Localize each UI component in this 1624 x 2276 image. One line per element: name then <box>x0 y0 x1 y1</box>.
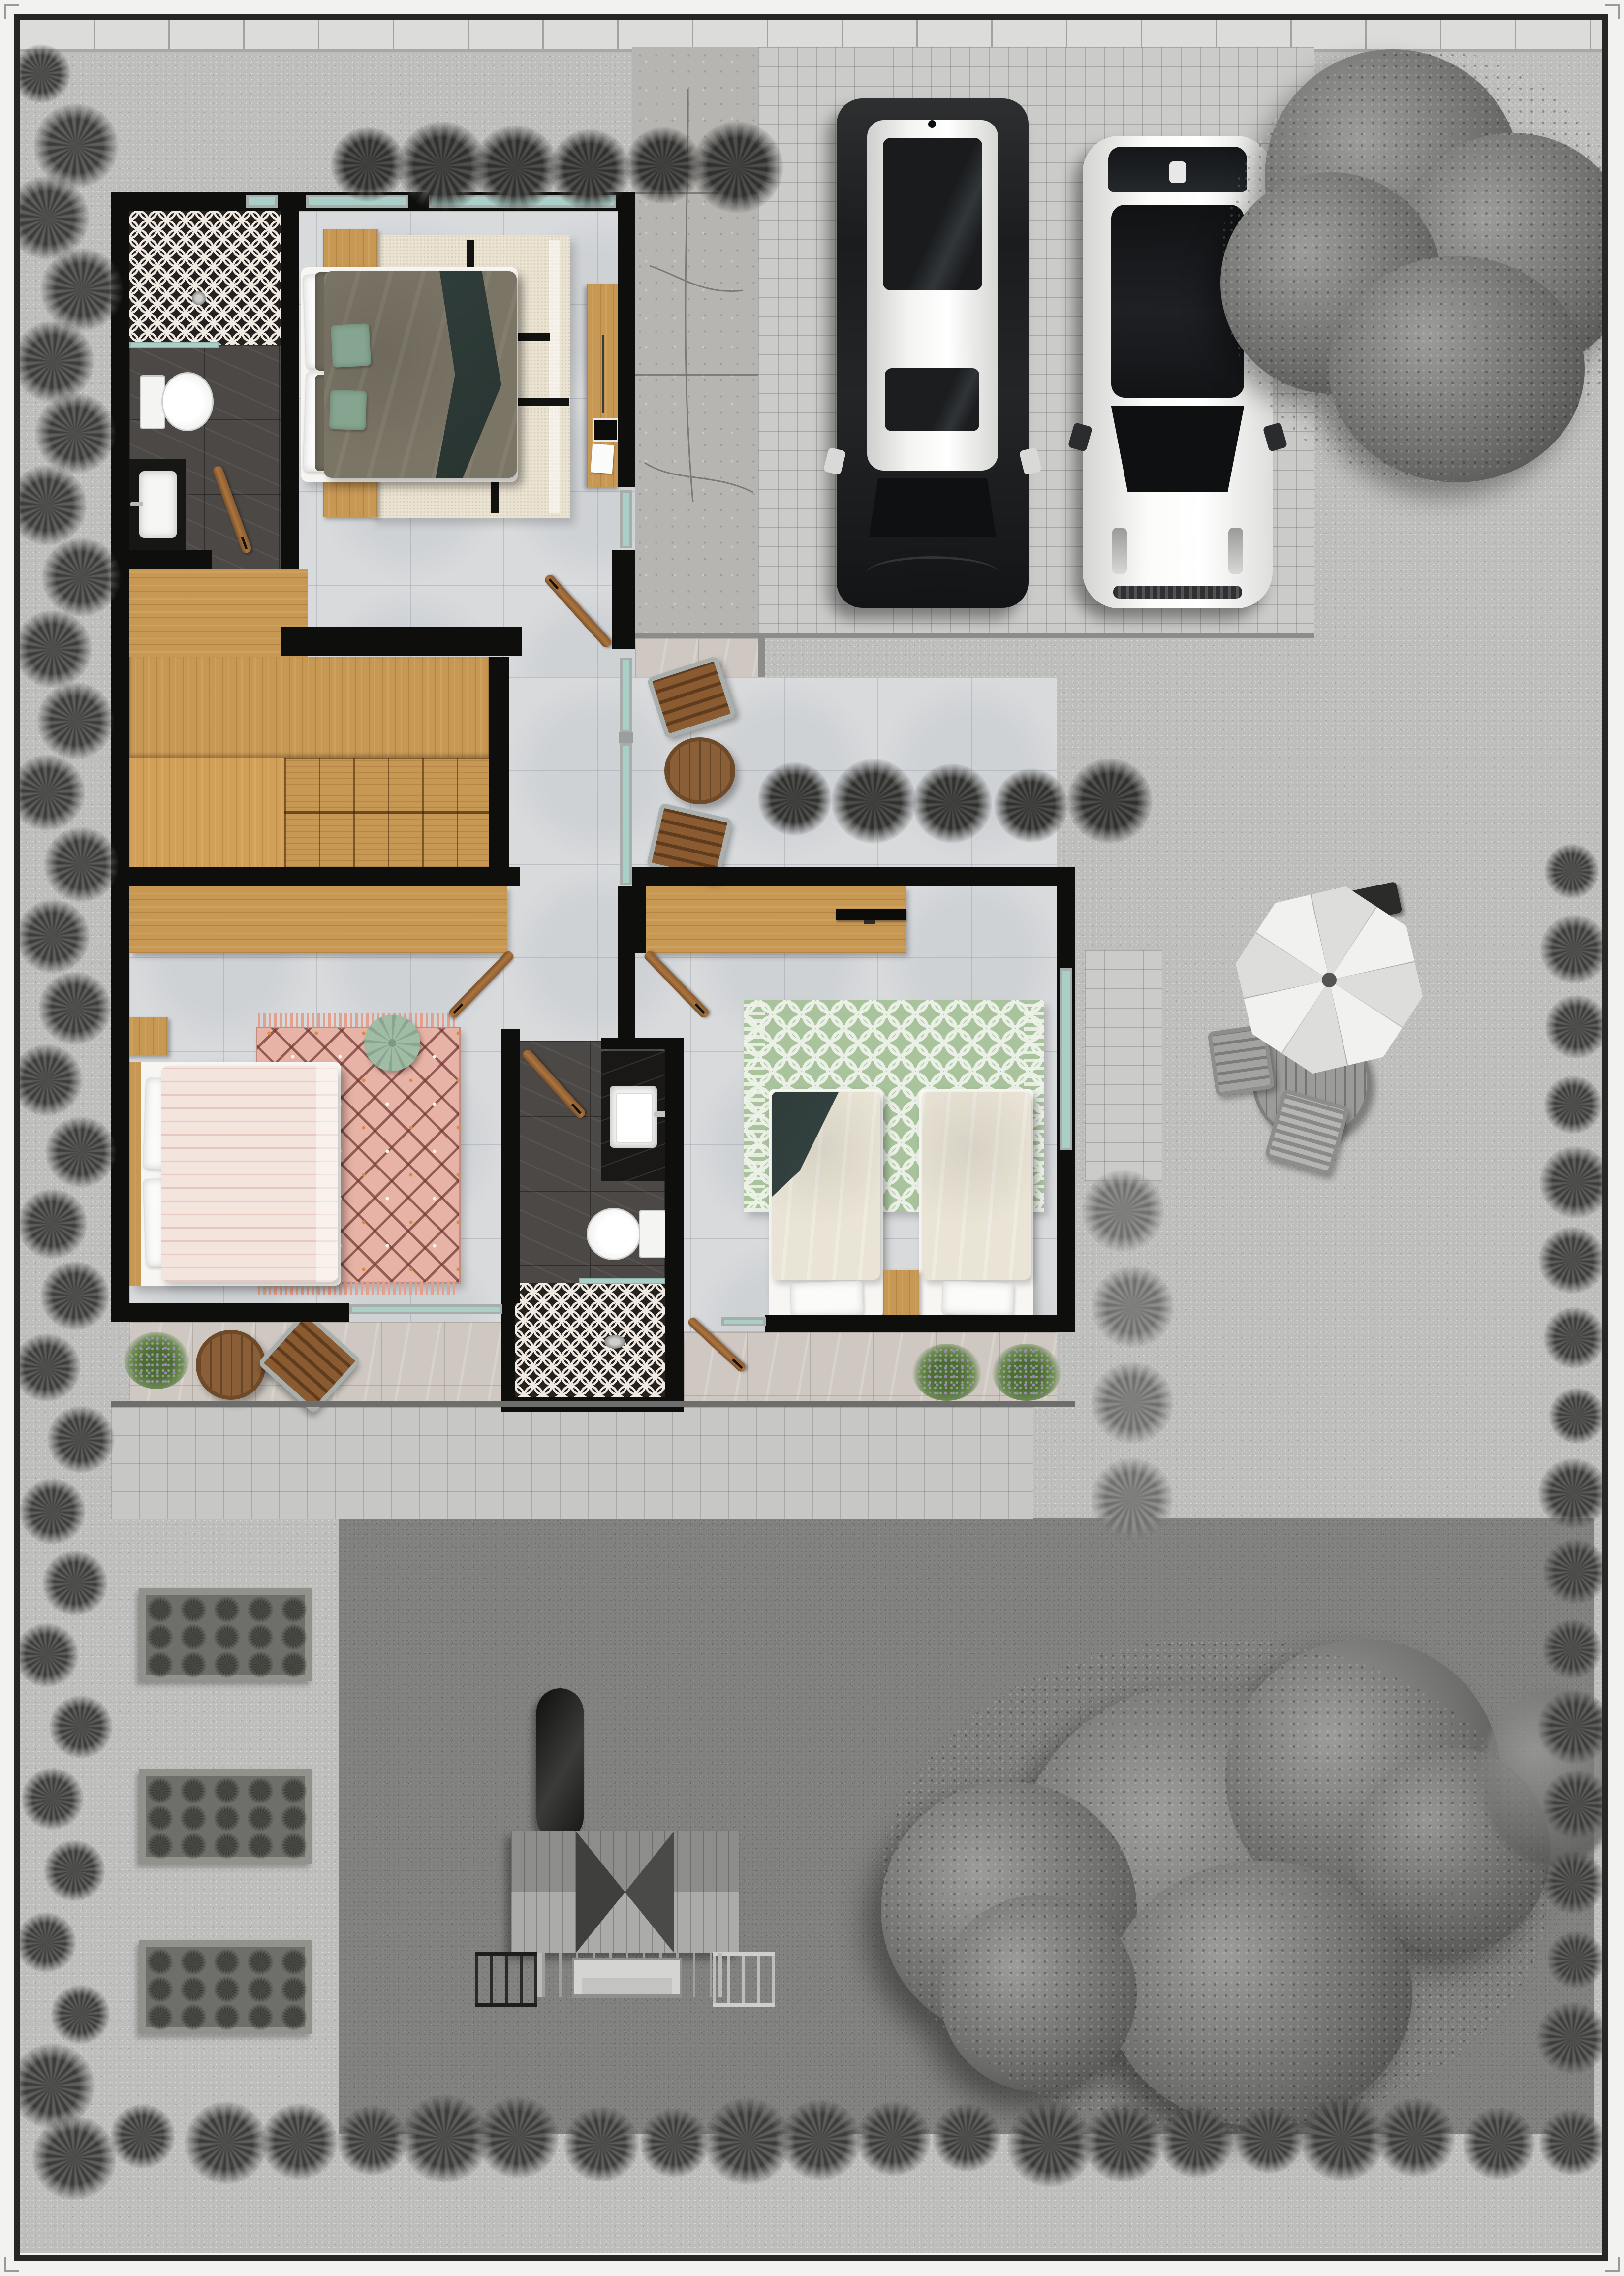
toilet-bowl <box>161 372 214 431</box>
wall-stairs-bottom <box>111 867 520 886</box>
hedge-shrub <box>912 763 992 843</box>
window <box>620 743 632 885</box>
bed-plant <box>180 1949 207 1975</box>
grass-tuft <box>640 2108 709 2178</box>
grass-tuft <box>16 1912 76 1973</box>
grass-tuft <box>37 682 114 759</box>
bed-plant <box>247 1777 274 1804</box>
grass-tuft <box>1007 2101 1093 2187</box>
grass-tuft <box>261 2103 338 2180</box>
tree-canopy-texture <box>1220 49 1624 482</box>
grass-tuft <box>1538 1458 1609 1529</box>
grass-tuft <box>40 248 124 331</box>
wardrobe-pink-room <box>129 886 507 953</box>
grass-tuft <box>42 537 121 617</box>
bed-plant <box>247 1651 274 1678</box>
grass-tuft <box>12 1333 81 1402</box>
pouf-button <box>388 1039 396 1047</box>
desk-console <box>587 284 620 487</box>
hedge-shrub <box>549 129 630 210</box>
bed-plant <box>147 1651 173 1678</box>
grass-tuft <box>1547 1931 1605 1989</box>
wall-shared-bath-right <box>665 1038 684 1400</box>
desk-tablet <box>593 418 619 442</box>
lavender-foliage <box>912 1344 981 1401</box>
shower-drain <box>192 291 206 305</box>
playhouse <box>468 1683 792 2008</box>
frame-border-left <box>14 14 20 2261</box>
pouf <box>364 1015 420 1071</box>
terrace-table <box>664 737 735 804</box>
rug-light-band <box>549 240 560 513</box>
grass-tuft <box>35 393 116 474</box>
grass-tuft <box>47 1406 115 1473</box>
tv-stand <box>864 920 875 924</box>
bed-plant <box>147 1833 173 1859</box>
rug-pink-fringe <box>258 1013 456 1027</box>
bed-plant <box>147 1805 173 1832</box>
bed-plant <box>147 1976 173 2003</box>
grass-tuft <box>1539 1146 1612 1219</box>
window <box>349 1304 502 1314</box>
page-margin-right <box>1607 0 1624 2276</box>
bed-plant <box>147 1777 173 1804</box>
window <box>1060 968 1072 1150</box>
grass-tuft <box>477 2096 559 2179</box>
bed-plant <box>281 2004 307 2030</box>
grass-tuft <box>1542 1619 1602 1679</box>
duvet-blush <box>161 1066 338 1282</box>
grass-tuft <box>16 899 90 974</box>
bed-plant <box>180 1777 207 1804</box>
grass-tuft <box>1539 2109 1605 2176</box>
toilet-shared <box>587 1207 665 1258</box>
bed-plant <box>214 1651 240 1678</box>
van-sunroof <box>883 138 982 290</box>
wall-bath-bottom <box>129 550 212 569</box>
van-rear-window <box>885 368 979 431</box>
bed-plant <box>281 1596 307 1623</box>
master-shower-floor <box>129 211 281 345</box>
van-windshield <box>869 478 996 537</box>
wall-master-right <box>618 211 635 487</box>
bed-plant <box>247 1805 274 1832</box>
bed-plant <box>180 1596 207 1623</box>
throw-teal <box>772 1092 880 1280</box>
lavender-foliage <box>992 1344 1061 1401</box>
grass-tuft <box>14 610 92 688</box>
bed-plant <box>247 1833 274 1859</box>
bed-plant <box>214 1833 240 1859</box>
grass-tuft <box>1543 1539 1608 1604</box>
stair-treads <box>284 758 490 867</box>
bed-plant <box>214 2004 240 2030</box>
throw-teal <box>324 271 517 478</box>
hedge-shrub <box>691 121 783 213</box>
desk-pen <box>602 335 604 413</box>
toilet-bowl <box>587 1208 641 1260</box>
grass-tuft <box>1236 2106 1303 2174</box>
shower-glass <box>129 342 219 348</box>
parking-tree <box>1201 49 1624 492</box>
grass-tuft <box>49 1695 113 1759</box>
grass-tuft <box>44 1840 105 1901</box>
crop-mark <box>4 4 19 19</box>
suv-grille <box>1113 586 1242 599</box>
bed-plant <box>281 1624 307 1650</box>
bed-plant <box>214 1949 240 1975</box>
grass-tuft <box>1544 1075 1602 1134</box>
bed-plant <box>147 1624 173 1650</box>
hedge-shrub <box>625 127 702 204</box>
grass-tuft <box>14 1623 79 1687</box>
washbasin-master <box>129 459 186 550</box>
wall-master-bottom <box>281 627 522 656</box>
grass-tuft <box>19 1478 86 1545</box>
grass-tuft <box>12 44 71 103</box>
grass-tuft <box>12 320 94 403</box>
grass-tuft <box>1463 2107 1535 2180</box>
grass-tuft <box>1083 2102 1163 2182</box>
lavender-pot <box>992 1344 1061 1401</box>
stair-mid-line <box>284 811 490 814</box>
floor-plan-scene <box>0 0 1624 2276</box>
grass-tuft <box>21 1768 84 1830</box>
bed-plant <box>214 1805 240 1832</box>
grass-tuft <box>337 2105 407 2176</box>
bed-plant <box>180 1624 207 1650</box>
lavender-pot <box>124 1332 189 1389</box>
frame-border-top <box>15 14 1608 20</box>
grass-tuft <box>45 1116 117 1188</box>
frame-border-right <box>1602 14 1608 2261</box>
duvet-fold <box>316 1066 338 1282</box>
rug-dash <box>513 333 550 341</box>
gray-bush <box>1091 1361 1174 1444</box>
balcony-table <box>196 1330 266 1400</box>
grass-tuft <box>933 2103 1001 2172</box>
basin <box>139 471 177 538</box>
stair-landing-left <box>129 758 284 867</box>
hedge-shrub <box>1067 758 1153 844</box>
shared-shower-glass <box>579 1278 665 1284</box>
stair-landing-upper <box>129 657 490 758</box>
double-bed <box>301 267 518 482</box>
tv <box>836 909 906 920</box>
bed-plant <box>247 1596 274 1623</box>
grass-tuft <box>1537 1690 1612 1764</box>
bed-plant <box>247 1949 274 1975</box>
grass-tuft <box>1545 995 1609 1059</box>
bed-plant <box>281 1976 307 2003</box>
grass-tuft <box>185 2101 268 2184</box>
window <box>620 490 632 548</box>
bed-pink <box>129 1062 341 1286</box>
duvet-olive <box>324 271 517 478</box>
van-antenna <box>928 120 936 128</box>
bed-plant <box>180 1976 207 2003</box>
playhouse-rail-left <box>475 1952 537 2007</box>
bed-plant <box>180 1651 207 1678</box>
nightstand <box>883 1270 919 1315</box>
bed-plant <box>180 2004 207 2030</box>
shared-drain <box>604 1335 625 1349</box>
grass-tuft <box>856 2101 931 2176</box>
faucet <box>130 502 143 506</box>
pillow <box>790 1280 864 1317</box>
gray-bush <box>1082 1170 1164 1252</box>
lavender-foliage <box>124 1332 189 1389</box>
bed-plant <box>247 1976 274 2003</box>
grass-tuft <box>44 827 119 902</box>
twin-bed-right <box>919 1089 1033 1318</box>
duvet-cream <box>922 1092 1031 1280</box>
bed-plant <box>214 1976 240 2003</box>
shared-shower-floor <box>515 1283 665 1397</box>
wall-kids-top <box>632 867 1075 886</box>
toilet-master <box>140 372 212 429</box>
wall-pink-bottom <box>111 1303 349 1322</box>
bed-plant <box>281 1949 307 1975</box>
dark-minivan <box>837 98 1029 608</box>
wall-shared-bath-left <box>501 1041 515 1412</box>
grass-tuft <box>32 2116 117 2200</box>
grass-tuft <box>110 2104 175 2169</box>
wall-pillar-entry <box>612 550 635 649</box>
bed-plant <box>281 1777 307 1804</box>
grass-tuft <box>1300 2096 1385 2181</box>
bed-plant <box>214 1596 240 1623</box>
grass-tuft <box>1538 1227 1606 1294</box>
grass-tuft <box>1543 1307 1605 1369</box>
balcony-edge <box>111 1401 1075 1407</box>
playhouse-chimney-slide <box>536 1688 584 1841</box>
frame-border-bottom <box>14 2255 1608 2261</box>
bed-plant <box>147 2004 173 2030</box>
grass-tuft <box>1542 1770 1611 1839</box>
grass-tuft <box>401 2094 489 2183</box>
page-margin-bottom <box>0 2264 1624 2276</box>
grass-tuft <box>780 2099 861 2181</box>
bed-plant <box>281 1833 307 1859</box>
garden-tree-large <box>851 1619 1555 2141</box>
playhouse-steps <box>572 1958 682 1998</box>
grass-tuft <box>1540 915 1609 984</box>
duvet-cream <box>772 1092 880 1280</box>
headboard <box>129 1062 141 1286</box>
twin-bed-left <box>769 1089 883 1318</box>
window <box>620 658 632 732</box>
wall-bath-bedroom <box>281 211 299 569</box>
wall-stair-right <box>489 657 509 867</box>
hedge-shrub <box>473 125 559 211</box>
suv-hood-vent <box>1112 528 1127 574</box>
crop-mark <box>4 2257 19 2272</box>
grass-tuft <box>42 1550 108 1616</box>
bed-plant <box>214 1624 240 1650</box>
wall-kids-stub <box>625 886 646 953</box>
grass-tuft <box>1542 1851 1605 1914</box>
grass-tuft <box>10 1044 83 1116</box>
nightstand <box>323 229 378 271</box>
grass-tuft <box>704 2097 791 2185</box>
vanity-alcove <box>601 1051 665 1181</box>
crop-mark <box>1605 2257 1620 2272</box>
basin-inner <box>616 1093 653 1143</box>
grass-tuft <box>1159 2104 1233 2178</box>
grass-tuft <box>51 1985 110 2044</box>
rug-dash <box>517 398 569 406</box>
bed-plant <box>180 1833 207 1859</box>
bed-plant <box>180 1805 207 1832</box>
bed-plant <box>147 1949 173 1975</box>
playhouse-roof <box>511 1831 739 1953</box>
bed-plant <box>281 1651 307 1678</box>
bed-plant <box>214 1777 240 1804</box>
desk-paper <box>591 444 614 474</box>
lavender-pot <box>912 1344 981 1401</box>
pillow <box>941 1280 1014 1316</box>
hedge-shrub <box>831 759 916 844</box>
van-hood-line <box>866 556 999 591</box>
grass-tuft <box>9 755 85 831</box>
hedge-shrub <box>994 768 1068 843</box>
window <box>246 195 278 208</box>
wall-twin-bottom <box>765 1315 1075 1332</box>
hedge-shrub <box>758 762 832 836</box>
basin <box>610 1086 657 1148</box>
bed-plant <box>247 2004 274 2030</box>
gray-bush <box>1092 1265 1174 1348</box>
toilet-tank <box>639 1210 666 1258</box>
window <box>721 1317 766 1326</box>
grass-tuft <box>563 2106 639 2182</box>
bed-plant <box>281 1805 307 1832</box>
grass-tuft <box>40 1261 110 1330</box>
tree-canopy-texture <box>881 1639 1550 2131</box>
bed-plant <box>147 1596 173 1623</box>
crop-mark <box>1605 4 1620 19</box>
grass-tuft <box>1549 1388 1605 1444</box>
grass-tuft <box>1376 2098 1455 2177</box>
cushion-sage <box>331 323 371 368</box>
grass-tuft <box>38 972 112 1045</box>
suv-roof-rack <box>1169 161 1186 183</box>
gray-bush <box>1091 1457 1173 1540</box>
grass-tuft <box>1544 844 1599 899</box>
window-jamb <box>619 732 633 743</box>
grass-tuft <box>1536 2002 1609 2074</box>
grass-tuft <box>17 1189 88 1259</box>
page-margin-top <box>0 0 1624 15</box>
hedge-shrub <box>331 127 406 202</box>
bed-plant <box>247 1624 274 1650</box>
cushion-sage <box>329 390 367 431</box>
suv-hood-vent <box>1228 528 1243 574</box>
nightstand <box>126 1017 168 1055</box>
